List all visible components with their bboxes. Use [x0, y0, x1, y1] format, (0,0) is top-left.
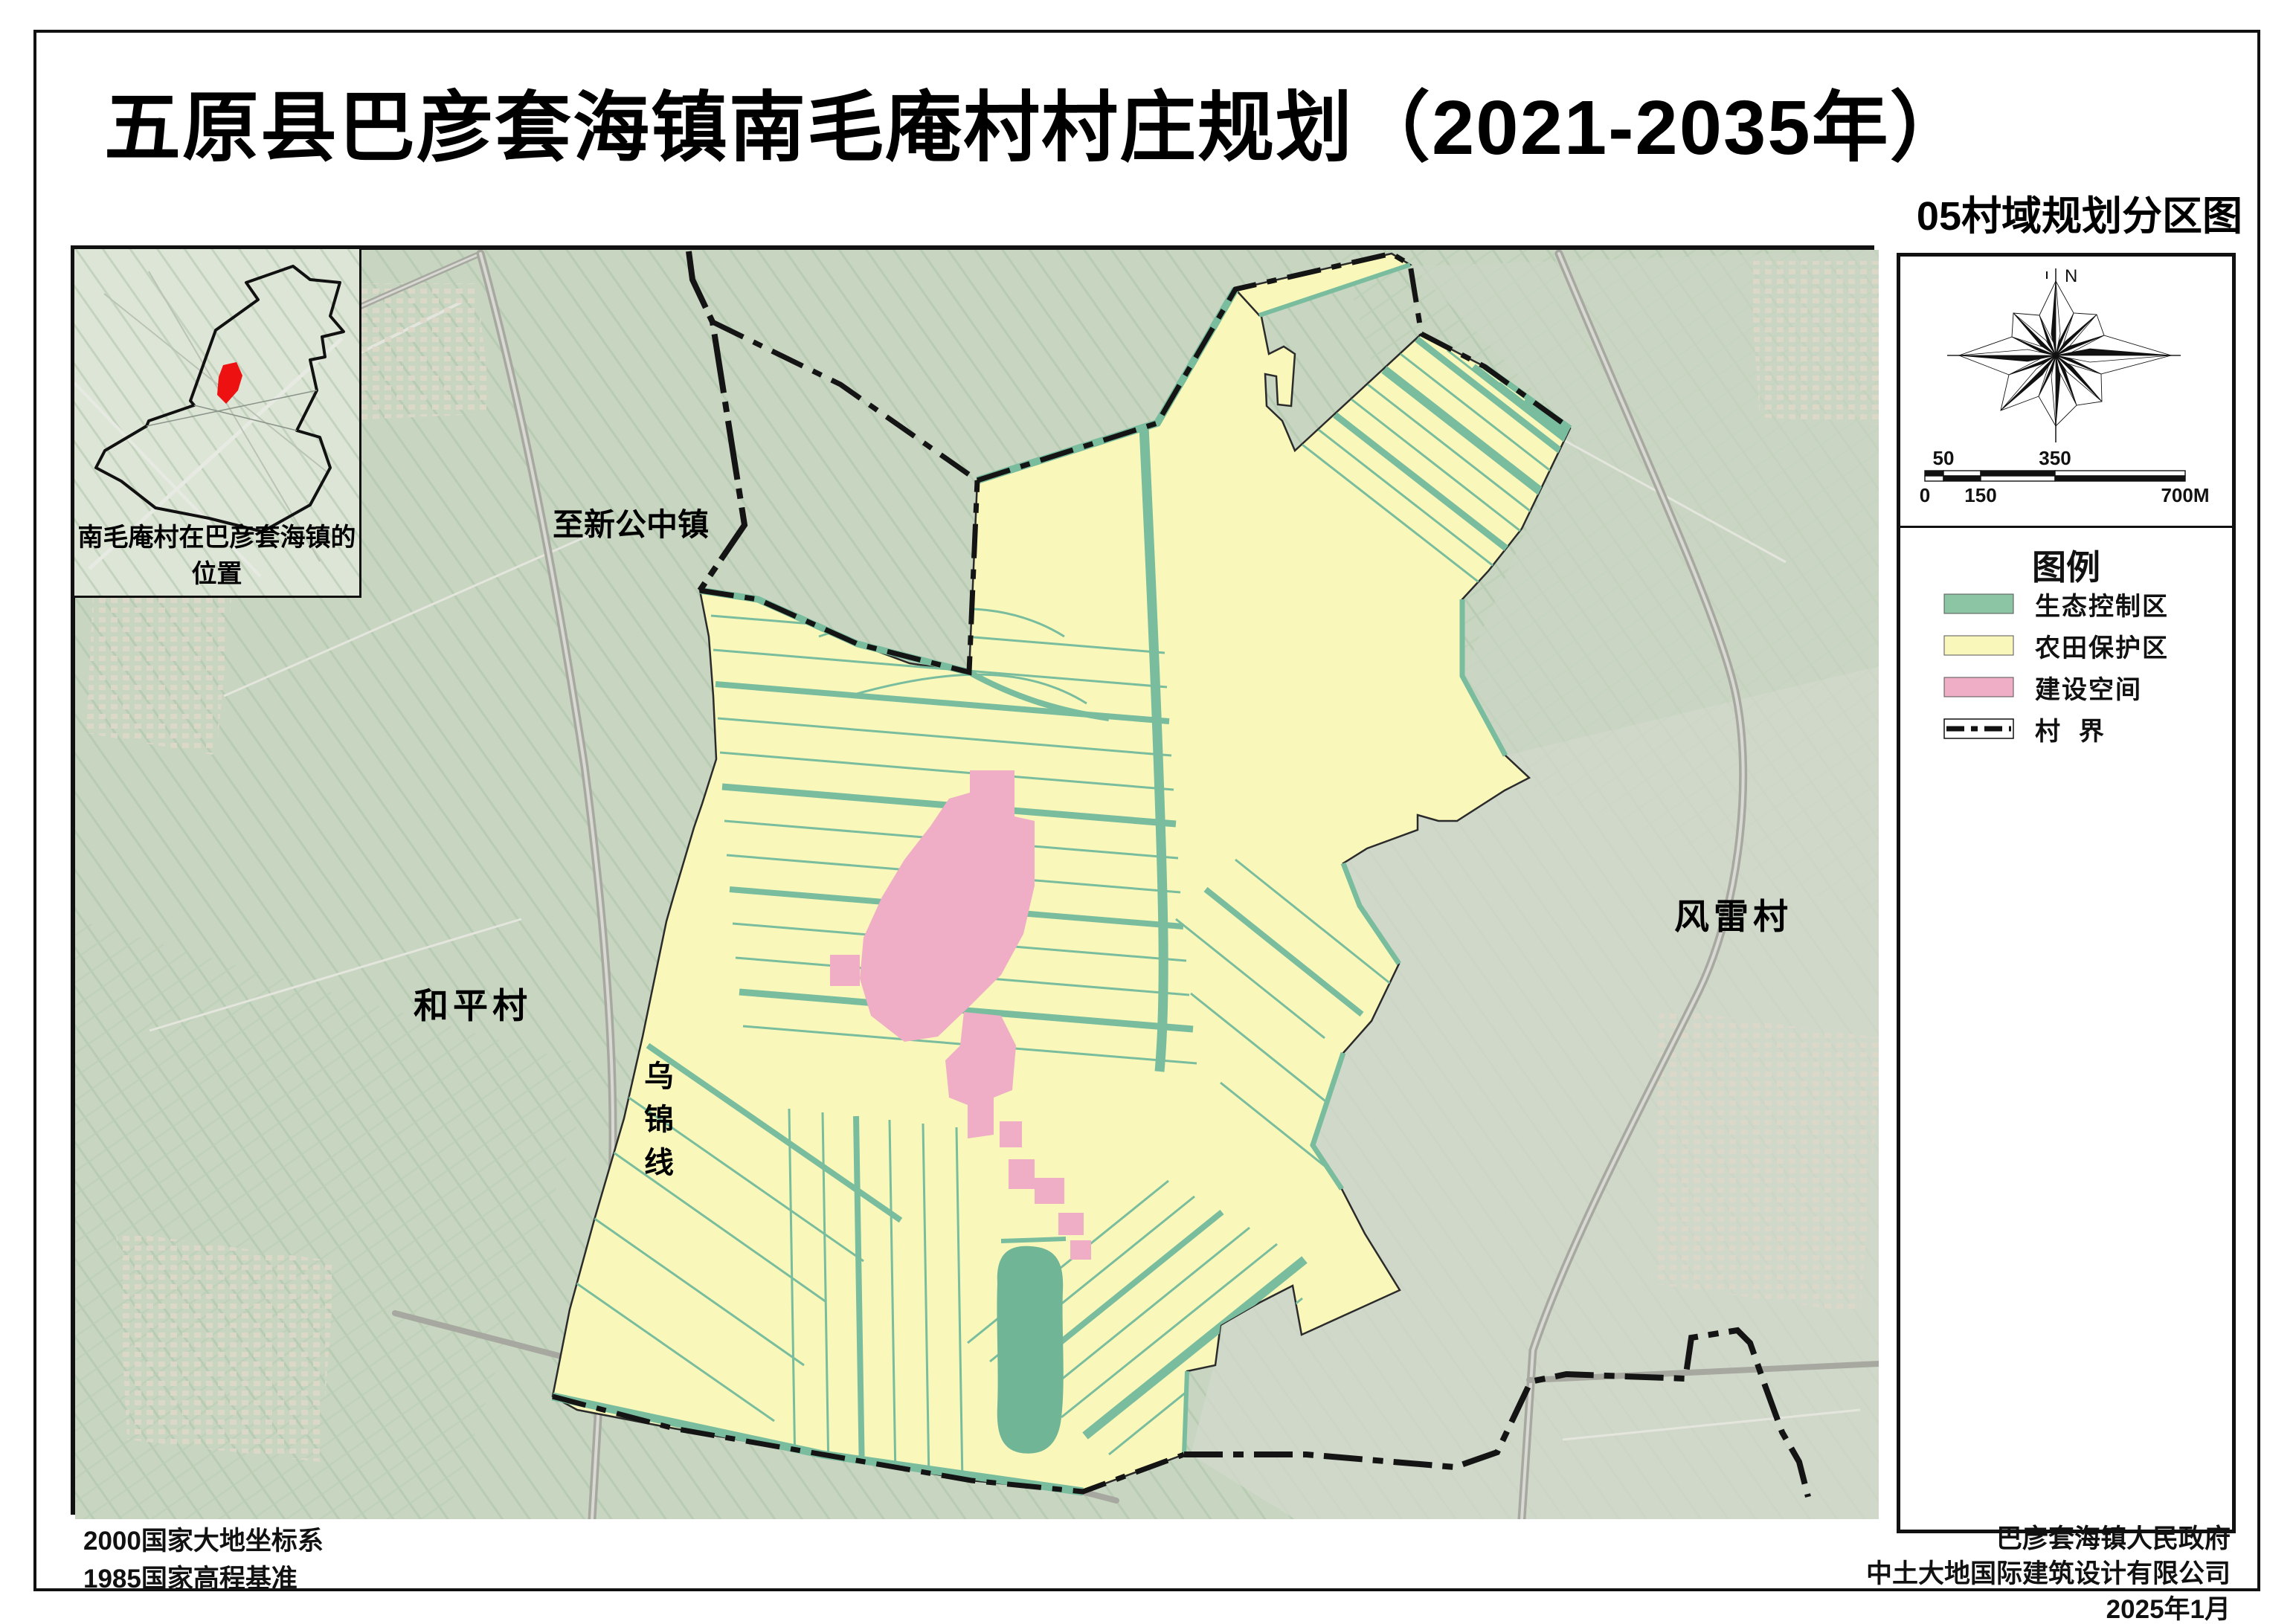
compass-north-label: N — [2065, 266, 2077, 286]
legend-item-ecological: 生态控制区 — [1943, 593, 2217, 615]
label-wujin-line: 乌锦线 — [634, 1060, 678, 1190]
ecological-swatch — [1943, 593, 2014, 614]
scale-label-50: 50 — [1933, 448, 1955, 469]
scale-label-0: 0 — [1920, 484, 1930, 506]
legend-label: 村 界 — [2035, 711, 2106, 747]
ecological-pond — [997, 1246, 1063, 1454]
legend-label: 建设空间 — [2035, 669, 2142, 706]
organization-note: 巴彦套海镇人民政府 中土大地国际建筑设计有限公司 2025年1月 — [1866, 1521, 2231, 1624]
inset-caption: 南毛庵村在巴彦套海镇的位置 — [74, 517, 359, 590]
inset-location-map: 南毛庵村在巴彦套海镇的位置 — [72, 247, 361, 598]
page-subtitle: 05村域规划分区图 — [1573, 183, 2242, 242]
org-line-2: 中土大地国际建筑设计有限公司 — [1866, 1556, 2231, 1591]
scale-label-350: 350 — [2039, 448, 2071, 469]
page-title: 五原县巴彦套海镇南毛庵村村庄规划（2021-2035年） — [104, 65, 1904, 176]
label-heping-village: 和平村 — [414, 977, 532, 1028]
farmland-swatch — [1943, 635, 2014, 656]
scale-label-150: 150 — [1964, 484, 1996, 506]
org-line-3: 2025年1月 — [1866, 1592, 2231, 1624]
legend: 生态控制区 农田保护区 建设空间 村 界 — [1943, 593, 2217, 759]
datum-note: 2000国家大地坐标系 1985国家高程基准 — [83, 1523, 324, 1599]
map-sidebar: N 50 350 0 150 700M 图例 — [1897, 253, 2236, 1533]
legend-label: 农田保护区 — [2035, 628, 2169, 664]
legend-title: 图例 — [1900, 541, 2232, 590]
legend-item-farmland: 农田保护区 — [1943, 634, 2217, 657]
org-line-1: 巴彦套海镇人民政府 — [1866, 1521, 2231, 1556]
datum-line-2: 1985国家高程基准 — [83, 1561, 324, 1599]
label-to-xingongzhong: 至新公中镇 — [553, 500, 709, 545]
scale-label-700m: 700M — [2161, 484, 2209, 506]
boundary-swatch — [1943, 718, 2014, 739]
construction-swatch — [1943, 677, 2014, 697]
compass-rose: N — [1934, 262, 2202, 448]
legend-item-construction: 建设空间 — [1943, 676, 2217, 698]
sidebar-divider — [1900, 526, 2232, 528]
plan-sheet: 五原县巴彦套海镇南毛庵村村庄规划（2021-2035年） 05村域规划分区图 — [0, 0, 2296, 1624]
legend-item-boundary: 村 界 — [1943, 718, 2217, 740]
legend-label: 生态控制区 — [2035, 586, 2169, 622]
scale-bar: 50 350 0 150 700M — [1914, 448, 2219, 515]
datum-line-1: 2000国家大地坐标系 — [83, 1523, 324, 1561]
label-fenglei-village: 风雷村 — [1674, 888, 1792, 939]
